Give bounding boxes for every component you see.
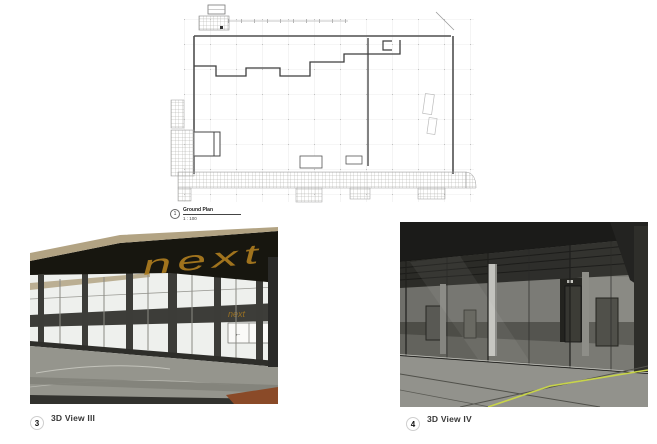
- view3-title: 3D View III: [51, 413, 95, 423]
- glass-wall: [400, 241, 648, 374]
- view4-title: 3D View IV: [427, 414, 472, 424]
- floor-plan-drawing: [168, 4, 502, 206]
- floor-plan-viewport[interactable]: [168, 4, 502, 206]
- plan-title-block: 1 Ground Plan 1 : 100: [170, 207, 241, 221]
- plan-number-bubble: 1: [170, 209, 180, 219]
- view3-number-bubble: 3: [30, 416, 44, 430]
- signage-small-text: next: [228, 309, 246, 319]
- view4-viewport[interactable]: [400, 222, 648, 407]
- view4-caption: 4 3D View IV: [406, 413, 472, 431]
- drawing-sheet: 1 Ground Plan 1 : 100 next ← →: [0, 0, 657, 444]
- view4-number-bubble: 4: [406, 417, 420, 431]
- view4-render: [400, 222, 648, 407]
- view3-viewport[interactable]: next ← →: [30, 227, 278, 404]
- corner-column-right: [634, 226, 648, 372]
- plan-title: Ground Plan: [183, 207, 241, 215]
- view3-caption: 3 3D View III: [30, 412, 95, 430]
- sliding-door: ← →: [228, 323, 270, 343]
- corner-column: [268, 257, 278, 367]
- stair-core: [199, 5, 229, 30]
- plan-scale: 1 : 100: [183, 216, 241, 221]
- view3-render: next ← →: [30, 227, 278, 404]
